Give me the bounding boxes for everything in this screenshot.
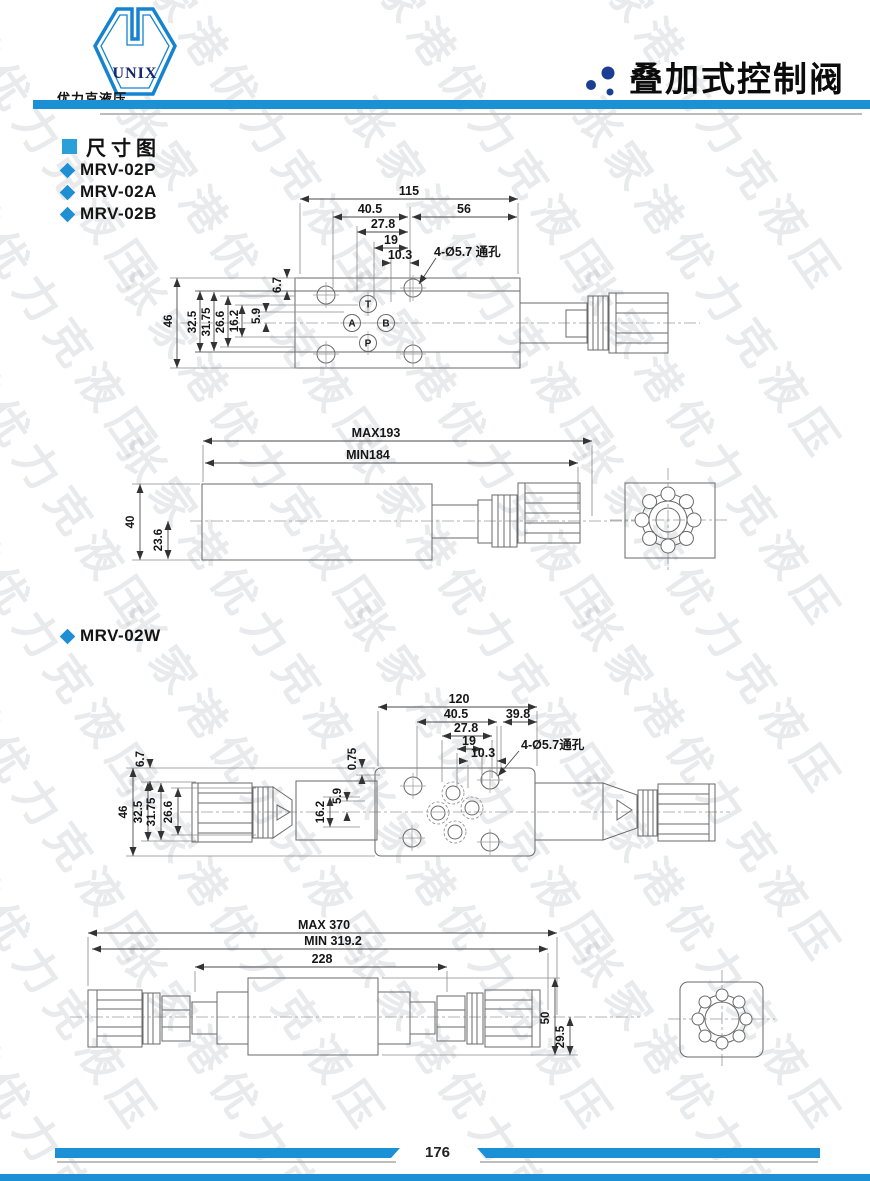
dim-228: 228 [312,952,333,966]
port-holes [427,782,483,843]
port-b-label: B [382,319,389,330]
dim-32-5: 32.5 [187,310,199,333]
dim-29-5: 29.5 [555,1025,567,1048]
dim-115: 115 [399,184,419,198]
mrv02-side-view-drawing: MAX193 MIN184 40 23.6 [125,426,730,572]
dim-0-75: 0.75 [347,747,359,770]
dimension-labels: MAX 370 MIN 319.2 228 50 29.5 [298,918,567,1048]
dim-min184: MIN184 [346,448,390,462]
dim-32-5: 32.5 [133,800,145,823]
dim-26-6: 26.6 [215,311,227,333]
mrv02w-side-view-drawing: MAX 370 MIN 319.2 228 50 29.5 [70,918,775,1068]
hole-note: 4-Ø5.7 通孔 [434,244,501,259]
dim-max370: MAX 370 [298,918,350,932]
left-knob-assembly [192,781,377,842]
dimension-labels: MAX193 MIN184 40 23.6 [125,426,400,551]
valve-body [202,483,580,560]
dim-40: 40 [125,516,137,529]
ports: T A B P [340,292,398,355]
dim-16-2: 16.2 [315,801,327,823]
dimension-drawings: T A B P [0,0,870,1181]
dim-120: 120 [449,692,470,706]
dim-min319-2: MIN 319.2 [304,934,362,948]
dim-6-7: 6.7 [272,277,284,293]
dim-50: 50 [540,1012,552,1025]
dim-27-8: 27.8 [454,721,478,735]
mrv02w-top-view-drawing: 120 40.5 39.8 27.8 19 10.3 4-Ø5.7通孔 46 3… [118,692,730,856]
dim-46: 46 [163,315,175,328]
mounting-holes [313,275,426,367]
dim-56: 56 [457,202,471,216]
catalog-page: { "header": { "logo_text": "UNIX", "logo… [0,0,870,1181]
page-content: UNIX 优力克液压 叠加式控制阀 尺寸图 MRV-02P MRV-02A MR… [0,0,870,1181]
port-t-label: T [365,300,371,311]
dim-23-6: 23.6 [153,529,165,551]
mounting-holes [399,767,503,855]
dimension-labels: 120 40.5 39.8 27.8 19 10.3 4-Ø5.7通孔 46 3… [118,692,585,826]
page-number: 176 [410,1144,465,1161]
dim-max193: MAX193 [352,426,401,440]
dim-39-8: 39.8 [506,707,530,721]
end-view [668,970,775,1068]
dim-10-3: 10.3 [471,746,495,760]
port-p-label: P [365,339,372,350]
port-a-label: A [348,319,355,330]
bottom-accent-strip [0,1174,870,1181]
dim-10-3: 10.3 [388,248,412,262]
dim-46: 46 [118,806,130,819]
dim-6-7: 6.7 [135,751,147,767]
dim-16-2: 16.2 [229,310,241,332]
dim-26-6: 26.6 [163,801,175,823]
dimension-lines [177,199,518,368]
dim-5-9: 5.9 [332,788,344,804]
dim-40-5: 40.5 [444,707,468,721]
dim-31-75: 31.75 [146,797,158,826]
extension-lines [170,203,518,368]
dim-27-8: 27.8 [371,217,395,231]
mrv02-top-view-drawing: T A B P [163,184,700,368]
end-view [610,468,730,572]
dim-19: 19 [384,233,398,247]
dim-40-5: 40.5 [358,202,382,216]
dim-31-75: 31.75 [201,307,213,336]
dim-5-9: 5.9 [251,308,263,324]
valve-body [88,978,540,1055]
hole-note: 4-Ø5.7通孔 [521,737,585,752]
